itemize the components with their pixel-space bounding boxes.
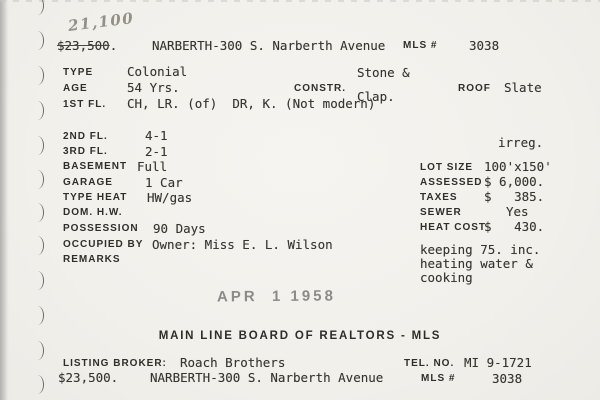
binding-hole-icon [31,236,44,255]
binding-hole-icon [31,136,44,155]
field-occupiedby-label: OCCUPIED BY [63,240,143,251]
field-assessed-label: ASSESSED [420,178,482,189]
binding-hole-icon [31,170,44,189]
pencil-price-note: 21,100 [67,11,135,35]
field-remarks-label: REMARKS [63,255,121,266]
field-type-value: Colonial [127,65,187,78]
header-mls-number: 3038 [469,39,499,52]
header-price: $23,500. [57,39,117,52]
binding-hole-icon [31,31,44,50]
footer-address: NARBERTH-300 S. Narberth Avenue [150,371,383,384]
field-sewer-value: Yes [506,205,529,218]
field-taxes-label: TAXES [420,193,458,204]
field-garage-value: 1 Car [145,176,183,189]
field-3rdfl-label: 3RD FL. [63,147,108,158]
date-stamp: APR 1 1958 [217,288,336,305]
field-lotsize-value: 100'x150' [484,160,552,173]
field-age-value: 54 Yrs. [127,81,180,94]
field-2ndfl-label: 2ND FL. [63,132,108,143]
binding-hole-icon [31,306,44,325]
field-1stfl-label: 1ST FL. [63,100,106,111]
footer-mls-label: MLS # [421,374,455,385]
field-heatcost-label: HEAT COST [420,223,486,234]
heat-note-line1: keeping 75. inc. [420,243,540,256]
field-constr-label: CONSTR. [294,84,346,95]
broker-label: LISTING BROKER: [63,359,167,370]
field-1stfl-value: CH, LR. (of) DR, K. (Not modern) [127,97,375,110]
field-garage-label: GARAGE [63,178,113,189]
field-roof-label: ROOF [458,84,491,95]
tel-label: TEL. NO. [404,359,454,370]
field-age-label: AGE [63,84,88,95]
header-price-struck: $23,500 [57,38,110,53]
binding-hole-icon [31,66,44,85]
field-occupiedby-value: Owner: Miss E. L. Wilson [152,238,333,251]
footer-mls-number: 3038 [492,372,522,385]
field-basement-label: BASEMENT [63,162,127,173]
field-type-label: TYPE [63,68,93,79]
field-taxes-value: $ 385. [484,190,544,203]
binding-hole-icon [31,341,44,360]
heat-note-line3: cooking [420,271,473,284]
field-heatcost-value: $ 430. [484,220,544,233]
field-sewer-label: SEWER [420,208,462,219]
binding-hole-icon [31,0,44,15]
footer-price: $23,500. [58,371,118,384]
field-2ndfl-value: 4-1 [145,129,168,142]
heat-note-line2: heating water & [420,257,533,270]
binding-hole-icon [31,203,44,222]
field-assessed-value: $ 6,000. [484,175,544,188]
listing-card: 21,100 $23,500. NARBERTH-300 S. Narberth… [0,0,600,400]
binding-hole-icon [31,375,44,394]
field-roof-value: Slate [504,81,542,94]
field-possession-label: POSSESSION [63,224,139,235]
field-3rdfl-value: 2-1 [145,145,168,158]
card-top-edge [0,0,600,2]
org-title: MAIN LINE BOARD OF REALTORS - MLS [0,330,600,342]
field-typeheat-label: TYPE HEAT [63,193,127,204]
broker-value: Roach Brothers [180,356,285,369]
field-possession-value: 90 Days [153,222,206,235]
tel-value: MI 9-1721 [464,356,532,369]
field-lotsize-label: LOT SIZE [420,163,473,174]
header-address: NARBERTH-300 S. Narberth Avenue [152,39,385,52]
field-typeheat-value: HW/gas [147,191,192,204]
field-domhw-label: DOM. H.W. [63,208,123,219]
field-basement-value: Full [137,160,167,173]
header-mls-label: MLS # [403,41,437,52]
header-price-period: . [110,38,118,53]
lot-irregular-note: irreg. [498,136,543,149]
binding-hole-icon [31,101,44,120]
field-constr-line1: Stone & [357,66,410,79]
binding-hole-icon [31,271,44,290]
